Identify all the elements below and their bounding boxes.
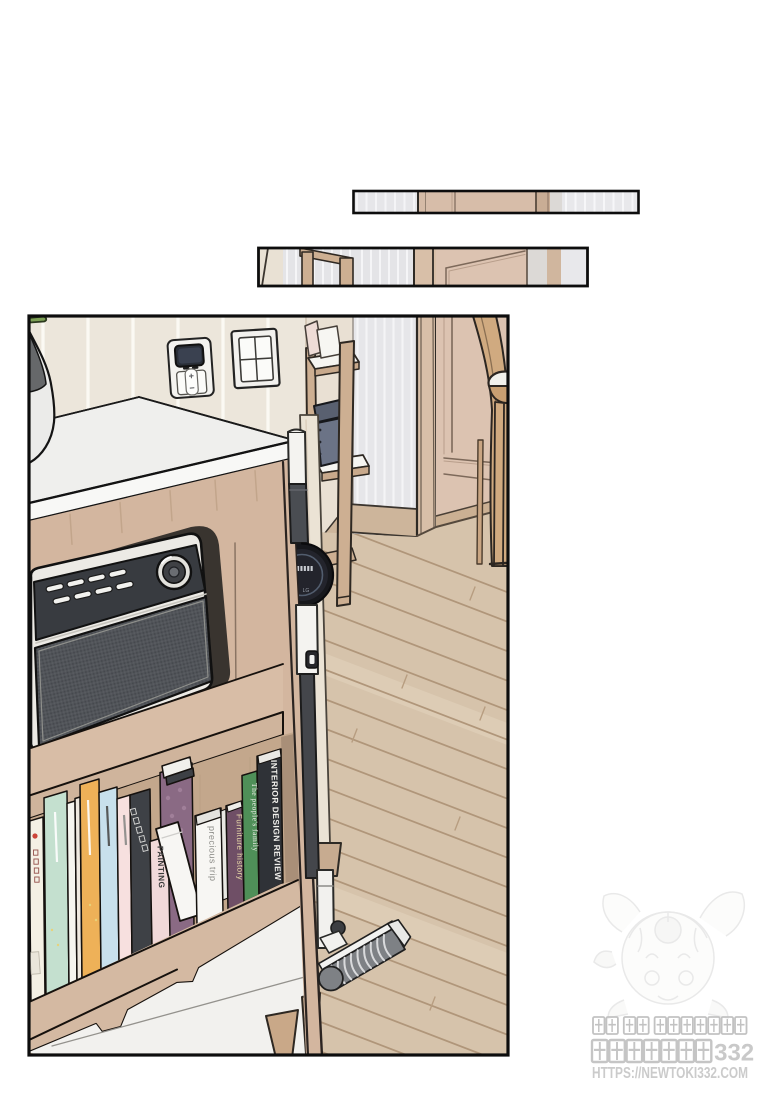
svg-text:332: 332 [714,1040,754,1067]
svg-text:HTTPS://NEWTOKI332.COM: HTTPS://NEWTOKI332.COM [592,1065,748,1082]
svg-text:+: + [188,371,194,381]
svg-text:PAINTING: PAINTING [156,846,166,889]
svg-text:Furniture history: Furniture history [235,814,245,880]
svg-text:−: − [189,383,195,393]
svg-text:precious trip: precious trip [207,826,218,882]
svg-text:LG: LG [303,588,310,594]
svg-text:The people's family: The people's family [250,783,260,852]
